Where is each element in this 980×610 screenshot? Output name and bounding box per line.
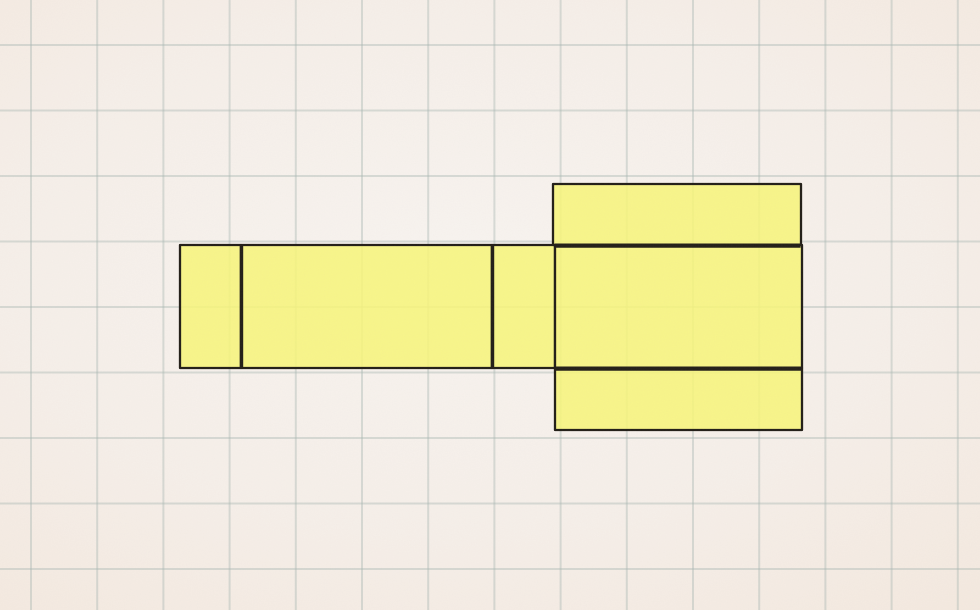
grid-paper-background bbox=[0, 0, 980, 610]
box-net-diagram bbox=[0, 0, 980, 610]
paper-texture-overlay bbox=[0, 0, 980, 610]
